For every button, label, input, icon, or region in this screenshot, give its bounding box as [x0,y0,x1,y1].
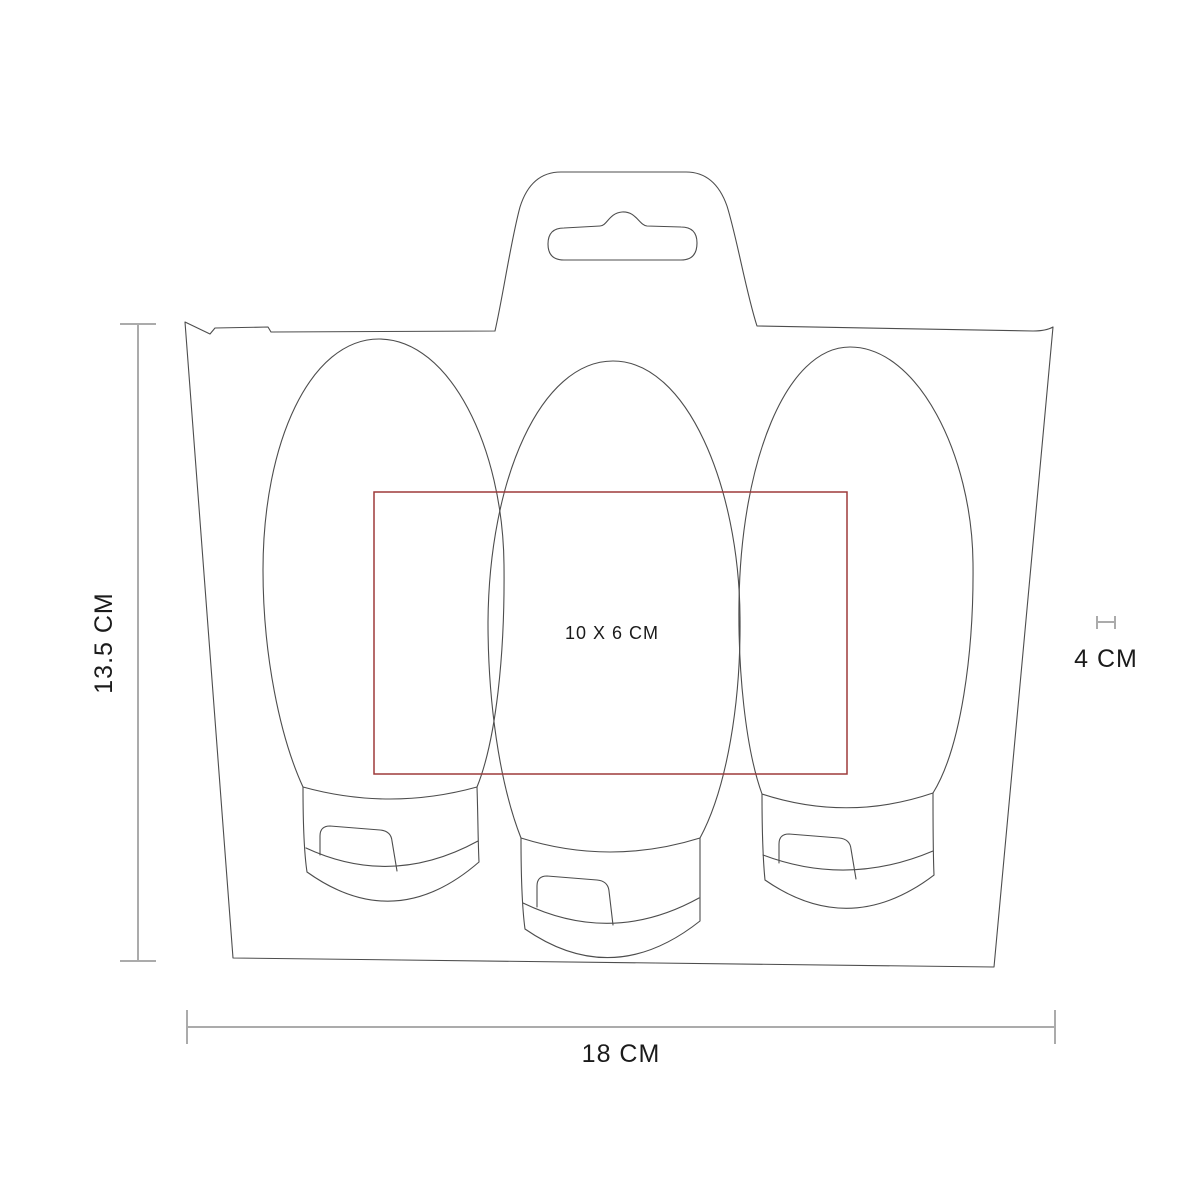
imprint-area-label: 10 X 6 CM [565,623,659,643]
tube-right-cap [762,793,934,908]
cap-width-dimension: 4 CM [1074,616,1138,673]
tube-middle-body [488,361,740,838]
imprint-area: 10 X 6 CM [374,492,847,774]
height-dimension: 13.5 CM [90,324,156,961]
tube-left-cap [303,787,479,901]
dimension-diagram: 10 X 6 CM 13.5 CM 18 CM 4 CM [0,0,1200,1200]
tube-right [739,347,973,908]
tube-left [263,339,504,901]
euro-slot-icon [548,212,697,260]
blister-card [185,172,1053,967]
tube-middle-cap [521,838,700,958]
tube-middle [488,361,740,958]
cap-width-label: 4 CM [1074,645,1138,673]
height-label: 13.5 CM [90,592,118,693]
width-dimension: 18 CM [187,1010,1055,1068]
tube-right-body [739,347,973,794]
tube-left-body [263,339,504,787]
card-outline [185,172,1053,967]
tube-middle-flip-tab [537,876,613,925]
tube-right-flip-tab [779,834,856,879]
diagram-canvas: 10 X 6 CM 13.5 CM 18 CM 4 CM [0,0,1200,1200]
width-label: 18 CM [582,1040,661,1068]
